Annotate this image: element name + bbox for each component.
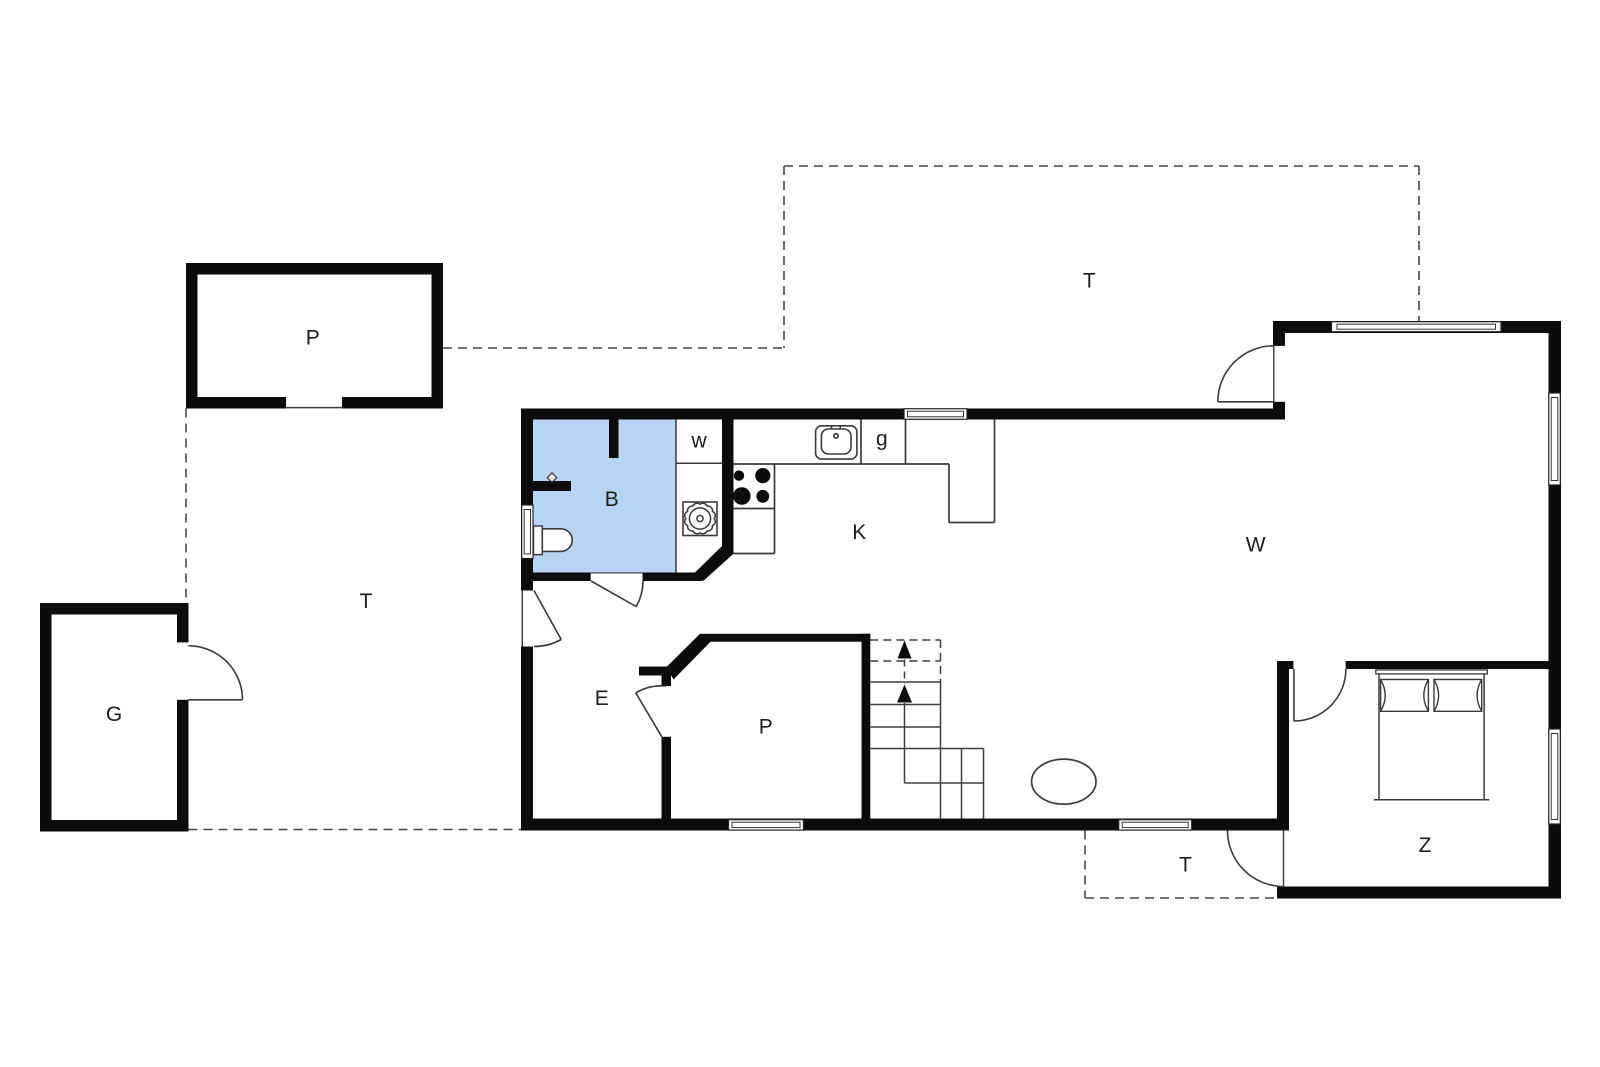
svg-text:T: T (1083, 270, 1096, 293)
svg-text:K: K (852, 521, 866, 544)
svg-text:Z: Z (1419, 834, 1432, 857)
svg-text:B: B (605, 488, 619, 511)
svg-text:P: P (306, 327, 320, 350)
svg-text:P: P (759, 716, 773, 739)
svg-text:w: w (691, 430, 708, 453)
svg-text:E: E (595, 687, 609, 710)
svg-text:T: T (359, 590, 372, 613)
svg-text:G: G (106, 703, 122, 726)
svg-text:T: T (1179, 853, 1192, 876)
svg-text:g: g (876, 428, 888, 451)
svg-text:W: W (1246, 534, 1266, 557)
